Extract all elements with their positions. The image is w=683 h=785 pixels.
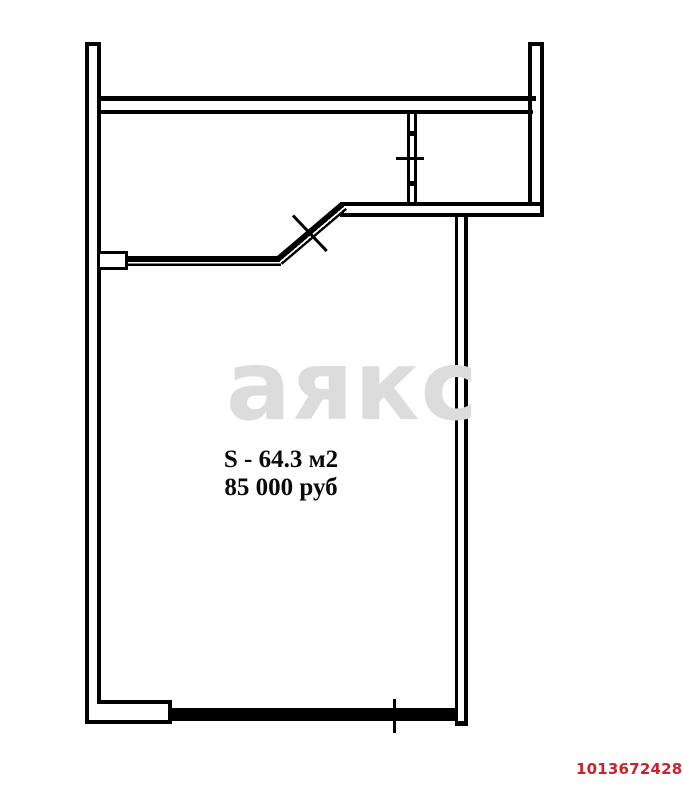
plan-labels: S - 64.3 м2 85 000 руб bbox=[181, 446, 381, 502]
price-label: 85 000 руб bbox=[181, 474, 381, 502]
agency-watermark: аякс bbox=[226, 338, 478, 434]
room-right-wall-bottom-cap bbox=[455, 721, 468, 726]
left-stub-wall bbox=[97, 251, 128, 270]
left-wall-top-cap bbox=[85, 42, 101, 46]
left-wall-inner-line bbox=[97, 42, 101, 704]
top-partition-jamb-upper bbox=[407, 131, 417, 136]
bottom-wall-tick bbox=[393, 699, 396, 733]
room-right-wall-right-line bbox=[464, 215, 468, 724]
left-wall-outer-line bbox=[85, 42, 89, 724]
area-label: S - 64.3 м2 bbox=[181, 446, 381, 474]
top-partition-jamb-lower bbox=[407, 181, 417, 186]
floor-plan: аякс S - 64.3 м2 85 000 руб 1013672428 bbox=[0, 0, 683, 785]
listing-id: 1013672428 bbox=[576, 760, 682, 778]
right-exterior-wall-outer-line bbox=[540, 42, 544, 216]
room-right-wall-left-line bbox=[455, 215, 458, 724]
bottom-wall-bar bbox=[170, 708, 455, 721]
top-wall-lower-line bbox=[101, 110, 533, 114]
bottom-left-wall-inner-line bbox=[97, 700, 172, 704]
right-exterior-wall-inner-line bbox=[528, 44, 532, 205]
interior-horizontal-wall bbox=[340, 202, 544, 217]
top-partition-opening-tick bbox=[396, 157, 424, 160]
bottom-left-wall-outer-line bbox=[85, 720, 172, 724]
right-exterior-wall-top-cap bbox=[528, 42, 544, 46]
partition-band-horizontal bbox=[128, 256, 281, 266]
top-wall-upper-line bbox=[99, 96, 536, 101]
